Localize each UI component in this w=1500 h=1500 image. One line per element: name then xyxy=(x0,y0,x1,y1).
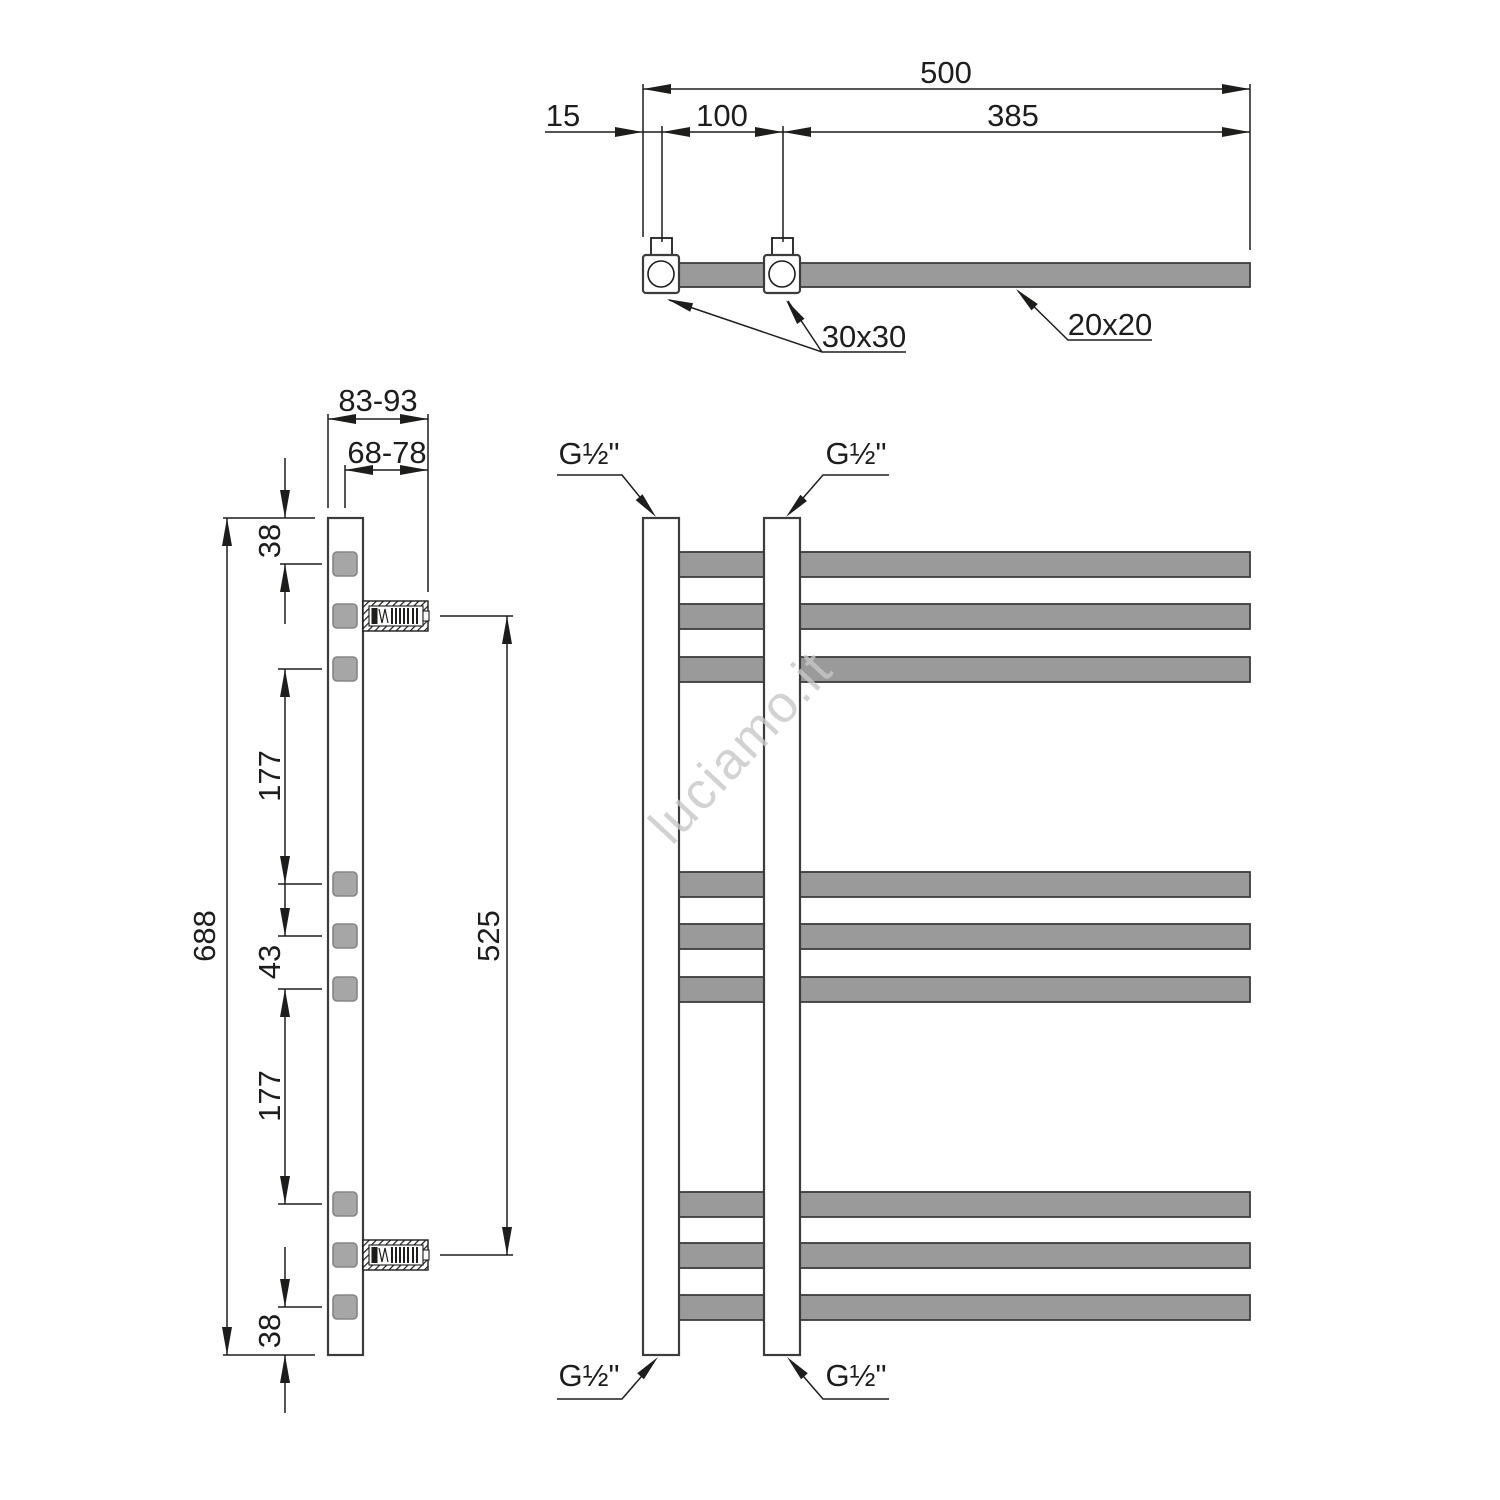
rung-section xyxy=(333,977,357,1001)
dim-total-height-label: 688 xyxy=(187,910,222,962)
rung-section xyxy=(333,1243,357,1267)
rung-section xyxy=(333,552,357,576)
top-view: 500 15 100 385 30x30 20x20 xyxy=(545,55,1250,354)
rail-tube-segment xyxy=(800,263,1250,287)
dim-end-offset-label: 15 xyxy=(546,98,580,133)
dim-rung-pitch-label: 43 xyxy=(252,945,287,979)
top-view-dimension-lines xyxy=(545,84,1250,250)
rung-segment xyxy=(679,1295,764,1320)
rung-segment xyxy=(800,872,1250,897)
rail-tube-segment xyxy=(679,263,764,287)
dim-remaining-label: 385 xyxy=(987,98,1039,133)
rung-segment xyxy=(800,1295,1250,1320)
fitting-profile-label: 30x30 xyxy=(822,319,906,354)
rung-segment xyxy=(800,1243,1250,1268)
rung-segment xyxy=(679,604,764,629)
rung-section xyxy=(333,1192,357,1216)
rung-section xyxy=(333,924,357,948)
rung-segment xyxy=(679,924,764,949)
front-view: G½" G½" G½" G½" xyxy=(557,436,1250,1399)
tube-profile-label: 20x20 xyxy=(1068,307,1152,342)
rung-segment xyxy=(679,552,764,577)
connection-label-bottom-right: G½" xyxy=(826,1358,887,1393)
rung-segment xyxy=(800,1192,1250,1217)
rung-segment xyxy=(800,604,1250,629)
connection-label-bottom-left: G½" xyxy=(559,1358,620,1393)
rung-segment xyxy=(800,924,1250,949)
rung-segment xyxy=(679,872,764,897)
dim-top-offset-label: 38 xyxy=(252,524,287,558)
dim-depth-total-label: 83-93 xyxy=(338,383,417,418)
rung-segment xyxy=(679,1192,764,1217)
rung-section xyxy=(333,1295,357,1319)
upper-wall-bracket xyxy=(363,601,429,631)
rung-segment xyxy=(679,1243,764,1268)
rung-segment xyxy=(679,657,764,682)
rung-segment xyxy=(800,552,1250,577)
connection-label-top-left: G½" xyxy=(559,436,620,471)
dim-connection-spacing-label: 100 xyxy=(696,98,748,133)
connection-port-right xyxy=(769,261,795,287)
dim-bottom-offset-label: 38 xyxy=(252,1314,287,1348)
dim-total-width-label: 500 xyxy=(920,55,972,90)
side-rung-sections xyxy=(333,552,357,1319)
rung-segment xyxy=(679,977,764,1002)
connection-port-left xyxy=(648,261,674,287)
drawing-page: 500 15 100 385 30x30 20x20 83-93 68-78 3… xyxy=(0,0,1500,1500)
rung-section xyxy=(333,657,357,681)
rung-section xyxy=(333,604,357,628)
side-view: 83-93 68-78 38 177 43 177 38 688 525 xyxy=(187,383,513,1413)
side-view-dimension-arrows xyxy=(222,414,512,1383)
dim-depth-hook-label: 68-78 xyxy=(347,435,426,470)
rung-section xyxy=(333,872,357,896)
collector-column-left xyxy=(643,518,679,1355)
dim-gap-upper-label: 177 xyxy=(252,750,287,802)
dim-bracket-distance-label: 525 xyxy=(471,910,506,962)
lower-wall-bracket xyxy=(363,1240,429,1270)
collector-column-right xyxy=(764,518,800,1355)
connection-label-top-right: G½" xyxy=(826,436,887,471)
rung-segment xyxy=(800,977,1250,1002)
rung-segment xyxy=(800,657,1250,682)
dim-gap-lower-label: 177 xyxy=(252,1070,287,1122)
technical-drawing: 500 15 100 385 30x30 20x20 83-93 68-78 3… xyxy=(0,0,1500,1500)
